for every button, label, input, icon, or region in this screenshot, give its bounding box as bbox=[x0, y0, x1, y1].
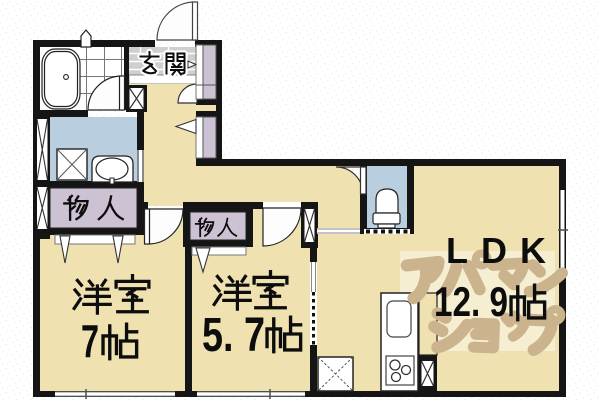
svg-text:12. 9: 12. 9 bbox=[434, 278, 508, 325]
svg-text:5. 7: 5. 7 bbox=[202, 309, 265, 362]
svg-text:7: 7 bbox=[81, 315, 99, 367]
svg-text:LDK: LDK bbox=[446, 230, 559, 271]
